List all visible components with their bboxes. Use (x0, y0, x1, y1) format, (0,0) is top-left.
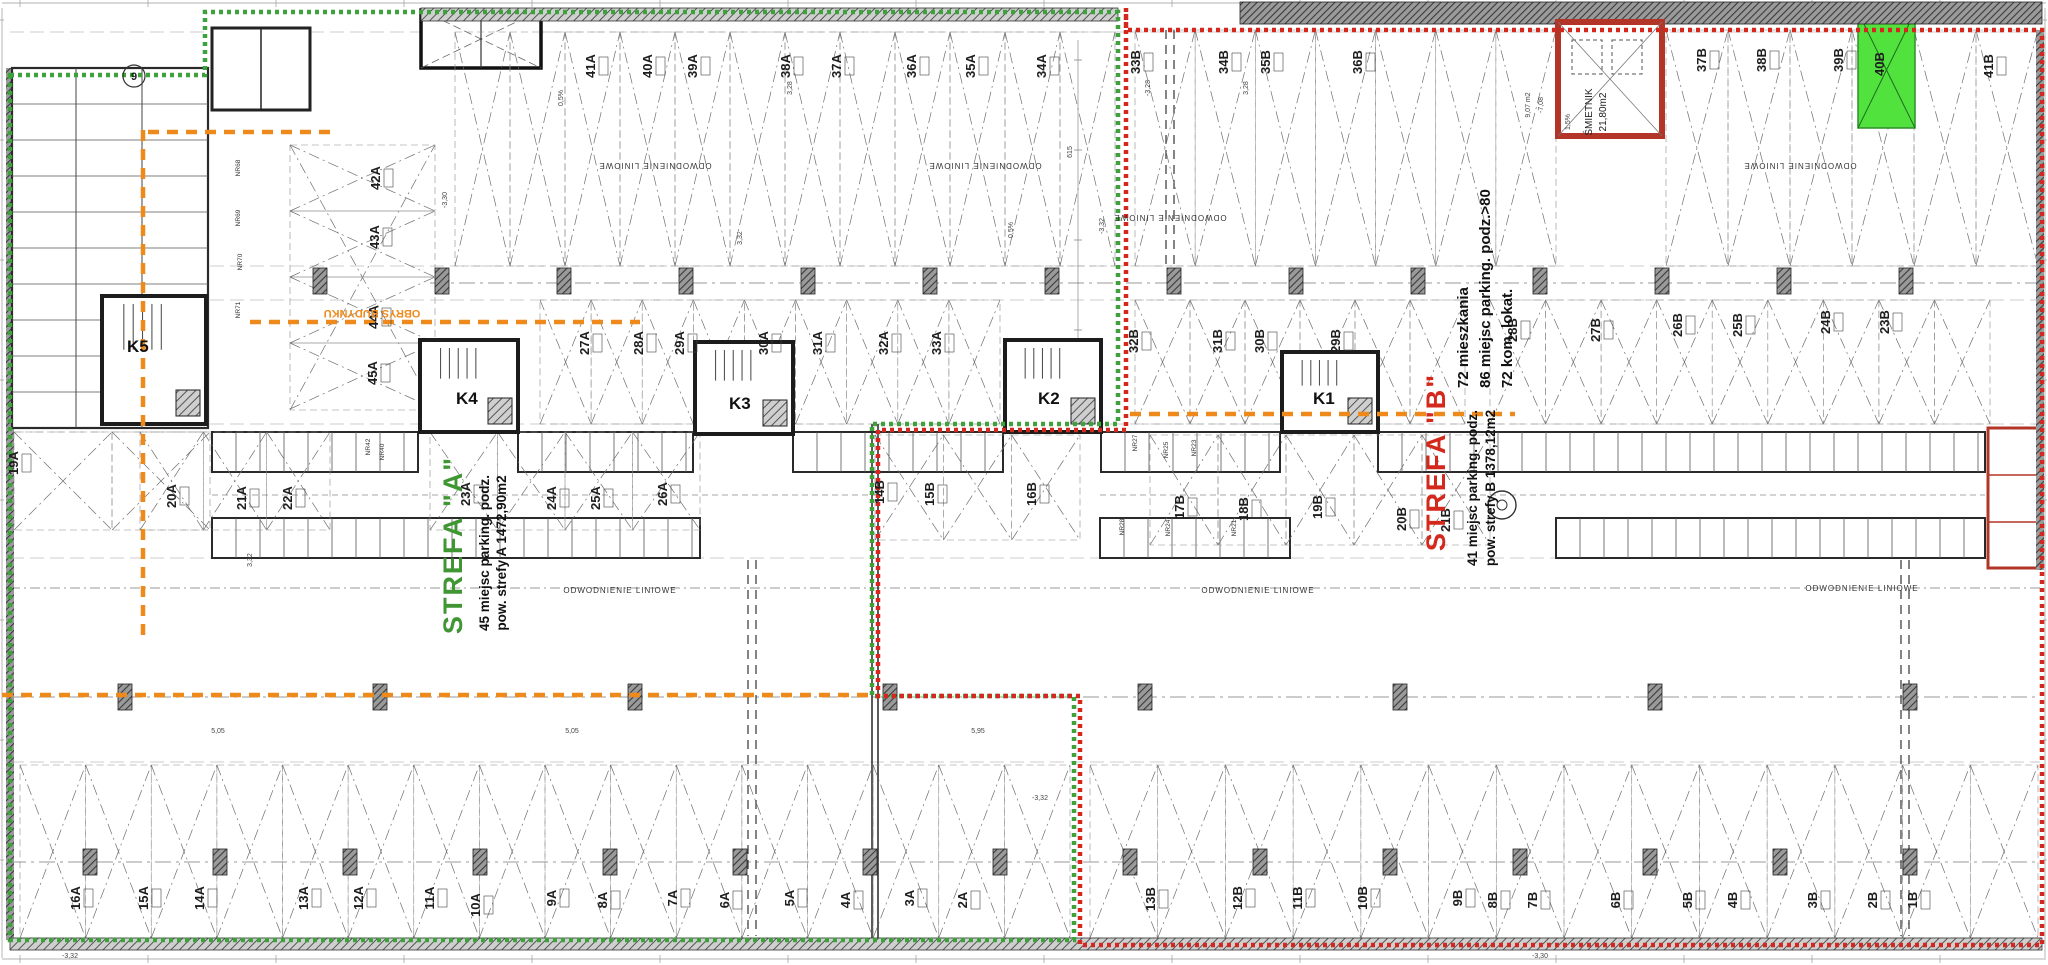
parking-space-label-text: 33A (929, 330, 944, 354)
column (1903, 849, 1917, 875)
column (1513, 849, 1527, 875)
column (1167, 268, 1181, 294)
dimension-label-text: -3,30 (442, 192, 449, 208)
parking-space-label-text: 26A (655, 481, 670, 505)
column (1773, 849, 1787, 875)
dimension-label-text: 3,28 (787, 81, 794, 95)
dimension-label-text: 1,5% (1565, 114, 1572, 130)
storage-room-label: NR69 (235, 209, 242, 226)
parking-space-label-text: 11A (422, 886, 437, 910)
storage-room-label: NR27 (1132, 434, 1139, 451)
storage-room-label-text: NR23 (1191, 439, 1198, 456)
tech-room-right (1988, 428, 2042, 568)
parking-space-label-text: 37A (829, 53, 844, 77)
drainage-label-text: ODWODNIENIE LINIOWE (598, 161, 711, 170)
dimension-label: -3,32 (1099, 218, 1106, 234)
column (993, 849, 1007, 875)
elevator-shaft (1071, 398, 1095, 424)
parking-space-label-text: 20A (164, 483, 179, 507)
elevator-shaft (763, 400, 787, 426)
parking-space-label-text: 27B (1588, 318, 1603, 342)
dimension-label: 5,05 (565, 728, 579, 735)
dimension-label: 3,32 (247, 553, 254, 567)
column (1777, 268, 1791, 294)
parking-space-label-text: 28A (631, 330, 646, 354)
drainage-label-text: ODWODNIENIE LINIOWE (1201, 586, 1314, 595)
column (923, 268, 937, 294)
column (679, 268, 693, 294)
column (1045, 268, 1059, 294)
storage-room-label-text: NR69 (235, 209, 242, 226)
parking-space-label-text: 27A (577, 330, 592, 354)
parking-space-label-text: 34A (1034, 53, 1049, 77)
parking-space-label-text: 10A (468, 892, 483, 916)
dimension-label-text: 3,28 (1243, 81, 1250, 95)
dimension-label-text: -3,28 (1145, 80, 1152, 96)
parking-space-label-text: 15B (922, 482, 937, 506)
parking-space-label-text: 39A (685, 53, 700, 77)
strefa-a-caption-2: pow. strefy A 1472,90m2 (494, 475, 509, 630)
column (1903, 684, 1917, 710)
parking-space-label-text: 22A (280, 485, 295, 509)
parking-space-label-text: 30B (1252, 329, 1267, 353)
parking-space-label-text: 20B (1394, 507, 1409, 531)
dimension-label: 0,5% (558, 90, 565, 106)
drainage-label: ODWODNIENIE LINIOWE (1743, 161, 1856, 170)
dimension-label-text: -3,32 (1099, 218, 1106, 234)
drainage-label-text: ODWODNIENIE LINIOWE (1743, 161, 1856, 170)
parking-space-label-text: 3A (902, 889, 917, 906)
dimension-label: -3,28 (1145, 80, 1152, 96)
parking-space-label-text: 21A (234, 485, 249, 509)
parking-space-label-text: 38B (1754, 48, 1769, 72)
stat-parking: 86 miejsc parking. podz.>80 (1477, 189, 1494, 388)
parking-space-label-text: 16B (1024, 482, 1039, 506)
parking-space-label-text: 35A (963, 53, 978, 77)
parking-space-label-text: 16A (68, 885, 83, 909)
column (343, 849, 357, 875)
column (1253, 849, 1267, 875)
storage-room-label-text: NR40 (379, 443, 386, 460)
stat-apartments: 72 mieszkania (1455, 286, 1472, 388)
dimension-label-text: 3,32 (737, 231, 744, 245)
parking-space-label-text: 31B (1210, 329, 1225, 353)
column (213, 849, 227, 875)
parking-space-label-text: 29A (672, 330, 687, 354)
drainage-label: ODWODNIENIE LINIOWE (563, 586, 676, 595)
parking-space-label-text: 41A (583, 53, 598, 77)
parking-space-label-text: 12A (351, 885, 366, 909)
parking-space-label-text: 13B (1143, 887, 1158, 911)
elevator-shaft (1348, 398, 1372, 424)
parking-space-label-text: 41B (1981, 54, 1996, 78)
storage-room-label: NR24 (1165, 519, 1172, 536)
storage-room-label-text: NR24 (1165, 519, 1172, 536)
parking-space-label-text: 35B (1258, 50, 1273, 74)
parking-space-label-text: 6B (1608, 892, 1623, 909)
column (1648, 684, 1662, 710)
parking-space-label-text: 14A (192, 885, 207, 909)
parking-space-label-text: 7B (1525, 892, 1540, 909)
storage-room-label: NR42 (365, 438, 372, 455)
parking-space-label-text: 38A (778, 53, 793, 77)
dimension-label-text: 0,5% (1008, 222, 1015, 238)
smietnik-area: 21,80m2 (1598, 92, 1609, 131)
column (435, 268, 449, 294)
parking-space-label-text: 34B (1216, 50, 1231, 74)
parking-space-label-text: 31A (810, 330, 825, 354)
storage-room-label-text: NR27 (1132, 434, 1139, 451)
storage-band (793, 432, 1003, 472)
drainage-label-text: ODWODNIENIE LINIOWE (1805, 584, 1918, 593)
column (557, 268, 571, 294)
parking-space-label-text: 8A (595, 891, 610, 908)
drainage-label: ODWODNIENIE LINIOWE (1113, 213, 1226, 222)
dimension-label: 3,32 (737, 231, 744, 245)
core-label-K2: K2 (1038, 389, 1060, 408)
dimension-label: 3,28 (1243, 81, 1250, 95)
column (1411, 268, 1425, 294)
core-label-K5: K5 (127, 337, 149, 356)
storage-room-label: NR71 (235, 301, 242, 318)
dimension-label: -3,30 (442, 192, 449, 208)
drainage-label-text: ODWODNIENIE LINIOWE (563, 586, 676, 595)
parking-space-label-text: 5A (782, 889, 797, 906)
parking-space-label-text: 18B (1236, 497, 1251, 521)
storage-room-label-text: NR21 (1231, 519, 1238, 536)
storage-room-label: NR21 (1231, 519, 1238, 536)
storage-room-label: NR25 (1163, 441, 1170, 458)
storage-band (1556, 518, 1985, 558)
column (1533, 268, 1547, 294)
parking-space-label-text: 17B (1172, 495, 1187, 519)
floor-plan-page: 41A40A39A38A37A36A35A34A33B34B35B36B37B3… (0, 0, 2048, 965)
smietnik-name: ŚMIETNIK (1582, 88, 1595, 136)
parking-space-label-text: 9A (544, 889, 559, 906)
storage-room-label: NR23 (1191, 439, 1198, 456)
dimension-label-text: 615 (1067, 146, 1074, 158)
column (313, 268, 327, 294)
column (83, 849, 97, 875)
dimension-label: -3,30 (1532, 953, 1548, 960)
room-area-note: 9,07 m2 (1525, 92, 1532, 117)
storage-room-label: NR28 (1119, 518, 1126, 535)
parking-space-label-text: 24A (544, 485, 559, 509)
dimension-label: 1,5% (1565, 114, 1572, 130)
drainage-label: ODWODNIENIE LINIOWE (1201, 586, 1314, 595)
parking-space-label-text: 10B (1355, 886, 1370, 910)
column (1383, 849, 1397, 875)
storage-band (518, 432, 693, 472)
dimension-label-text: 5,05 (211, 728, 225, 735)
parking-space-label-text: 2A (955, 891, 970, 908)
parking-space-label-text: 25A (588, 485, 603, 509)
strefa-b-caption-2: pow. strefy B 1378,12m2 (1483, 410, 1498, 566)
drainage-label: ODWODNIENIE LINIOWE (1805, 584, 1918, 593)
column (1123, 849, 1137, 875)
storage-room-label: NR70 (237, 253, 244, 270)
strefa-b-title: STREFA "B" (1421, 373, 1451, 551)
parking-space-label-text: 33B (1128, 50, 1143, 74)
core-label-K3: K3 (729, 394, 751, 413)
dimension-label: 615 (1067, 146, 1074, 158)
storage-room-label-text: NR25 (1163, 441, 1170, 458)
storage-room-label: NR68 (235, 159, 242, 176)
dimension-label-text: -3,32 (1032, 795, 1048, 802)
dimension-label-text: 5,05 (565, 728, 579, 735)
building-outline-label: OBRYS BUDYNKU (324, 307, 421, 319)
dimension-label-text: -3,30 (1532, 953, 1548, 960)
parking-space-label-text: 3B (1805, 892, 1820, 909)
parking-space-label-text: 7A (665, 889, 680, 906)
drainage-label: ODWODNIENIE LINIOWE (598, 161, 711, 170)
parking-space-label-text: 26B (1670, 313, 1685, 337)
storage-room-label-text: NR71 (235, 301, 242, 318)
dimension-label: -3,32 (1032, 795, 1048, 802)
column (863, 849, 877, 875)
parking-space-label-text: 30A (756, 330, 771, 354)
storage-room-label-text: NR68 (235, 159, 242, 176)
parking-space-label-text: 42A (368, 165, 383, 189)
parking-space-label-text: 23B (1877, 310, 1892, 334)
parking-space-label-text: 5B (1680, 892, 1695, 909)
dimension-label-text: -3,32 (62, 953, 78, 960)
parking-space-label-text: 39B (1831, 48, 1846, 72)
parking-space-label-text: 13A (296, 885, 311, 909)
column (1643, 849, 1657, 875)
dimension-label-text: 5,95 (971, 728, 985, 735)
elevator-shaft (176, 390, 200, 416)
room-level-note: -7,08 (1538, 97, 1545, 113)
column (1138, 684, 1152, 710)
dimension-label: 5,95 (971, 728, 985, 735)
parking-space-label-text: 4B (1725, 892, 1740, 909)
parking-space-label-text: 45A (365, 360, 380, 384)
parking-space-label-text: 15A (136, 885, 151, 909)
drainage-label-text: ODWODNIENIE LINIOWE (1113, 213, 1226, 222)
dimension-label-text: 0,5% (558, 90, 565, 106)
column (1393, 684, 1407, 710)
floor-plan-canvas: 41A40A39A38A37A36A35A34A33B34B35B36B37B3… (0, 0, 2048, 965)
storage-room-label-text: NR28 (1119, 518, 1126, 535)
core-label-K4: K4 (456, 389, 478, 408)
column (801, 268, 815, 294)
parking-space-label-text: 11B (1290, 886, 1305, 909)
parking-space-label-text: 43A (367, 224, 382, 248)
parking-space-label-text: 25B (1730, 313, 1745, 337)
dimension-label: 3,28 (787, 81, 794, 95)
parking-space-label-text: 36A (904, 53, 919, 77)
column (603, 849, 617, 875)
parking-space-label-text: 19A (6, 450, 21, 474)
elevator-shaft (488, 398, 512, 424)
parking-space-label-text: 6A (717, 891, 732, 908)
parking-space-label-text: 4A (838, 891, 853, 908)
drainage-label-text: ODWODNIENIE LINIOWE (928, 161, 1041, 170)
parking-space-label-text: 1B (1905, 892, 1920, 909)
parking-space-label-text: 8B (1485, 892, 1500, 909)
strefa-b-caption-1: 41 miejsc parking. podz. (1465, 410, 1480, 566)
parking-space-label-text: 14B (872, 480, 887, 504)
core-label-K1: K1 (1313, 389, 1335, 408)
parking-space-label-text: 36B (1350, 50, 1365, 74)
storage-band (212, 432, 418, 472)
parking-space-label-text: 19B (1310, 495, 1325, 519)
storage-band (1100, 518, 1290, 558)
axis-bubble-number: 9 (131, 71, 137, 83)
parking-space-label-text: 24B (1818, 310, 1833, 334)
strefa-a-title: STREFA "A" (438, 456, 468, 634)
parking-space-label-text: 12B (1230, 886, 1245, 910)
column (1655, 268, 1669, 294)
dimension-label: 5,05 (211, 728, 225, 735)
highlighted-space-label-text: 40B (1872, 52, 1887, 76)
dimension-label: 0,5% (1008, 222, 1015, 238)
parking-space-label-text: 32A (876, 330, 891, 354)
storage-room-label: NR40 (379, 443, 386, 460)
column (473, 849, 487, 875)
parking-space-label-text: 40A (640, 53, 655, 77)
parking-space-label-text: 32B (1126, 329, 1141, 353)
parking-space-label-text: 9B (1450, 890, 1465, 907)
dimension-label: -3,32 (62, 953, 78, 960)
column (1899, 268, 1913, 294)
strefa-a-caption-1: 45 miejsc parking. podz. (477, 475, 492, 631)
stat-storage: 72 kom. lokat. (1499, 289, 1516, 388)
drainage-label: ODWODNIENIE LINIOWE (928, 161, 1041, 170)
column (733, 849, 747, 875)
parking-space-label-text: 37B (1694, 48, 1709, 72)
parking-space-label-text: 29B (1328, 329, 1343, 353)
parking-space-label-text: 2B (1865, 892, 1880, 909)
dimension-label-text: 3,32 (247, 553, 254, 567)
highlighted-space-label: 40B (1872, 52, 1887, 76)
storage-room-label-text: NR42 (365, 438, 372, 455)
storage-room-label-text: NR70 (237, 253, 244, 270)
column (1289, 268, 1303, 294)
